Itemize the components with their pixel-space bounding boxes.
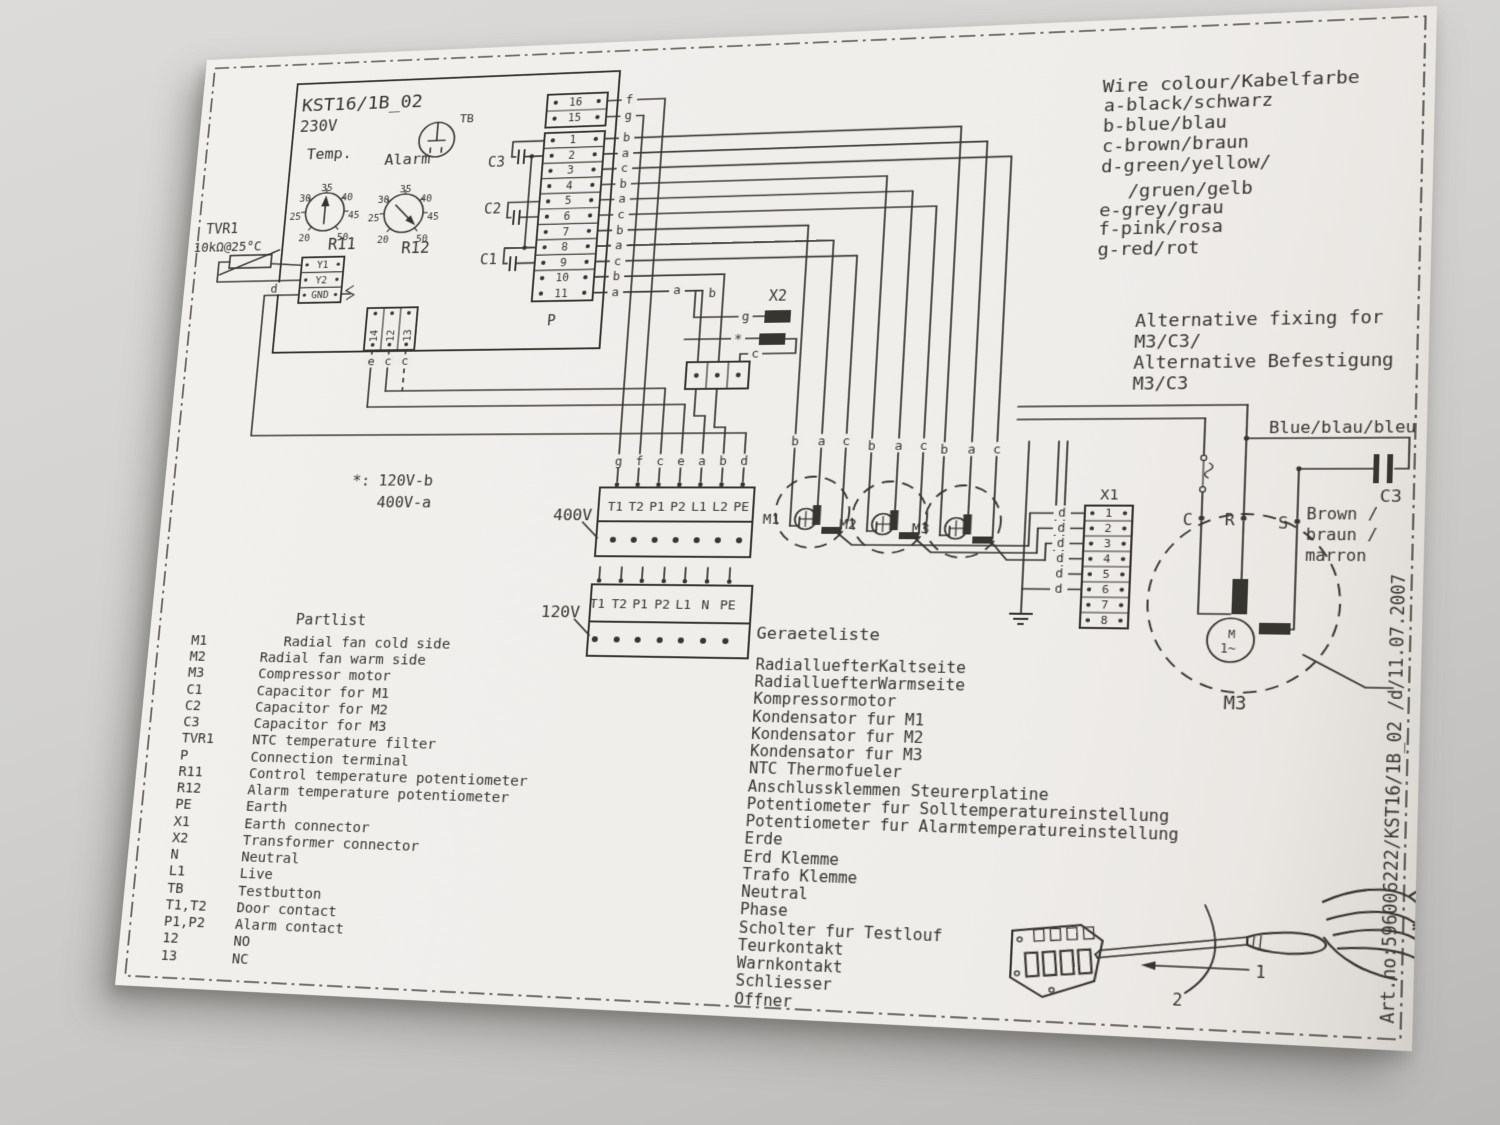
motor-wire-colour: a	[817, 434, 826, 449]
dial-tick-label: 25	[289, 212, 301, 223]
partlist-desc: NC	[231, 949, 249, 967]
x1-pin-number: 3	[1103, 538, 1111, 551]
partlist-key: TB	[167, 879, 185, 896]
junction-dot	[615, 482, 620, 486]
note-400v: 400V-a	[376, 494, 432, 511]
motor-wire-colour: c	[993, 442, 1002, 457]
t120-stub	[642, 567, 643, 580]
motor-wire-colour: c	[919, 438, 928, 453]
junction-dot	[656, 637, 662, 643]
junction-dot	[1119, 588, 1124, 592]
junction-dot	[590, 183, 595, 187]
motor-wire-colour: c	[842, 434, 851, 449]
p-cell-divider	[538, 223, 598, 225]
p-cell-divider	[544, 146, 604, 148]
x1-label: X1	[1100, 487, 1119, 503]
partlist-title: Partlist	[295, 611, 367, 629]
note-star: *:	[351, 473, 371, 490]
junction-dot	[597, 578, 602, 583]
t120-col-label: PE	[719, 598, 736, 613]
dial-tick-label: 30	[299, 194, 311, 205]
junction-dot	[698, 482, 703, 486]
x1-row-divider	[1080, 612, 1128, 613]
x2-a-wire-label: a	[673, 283, 681, 297]
junction-dot	[1086, 603, 1091, 607]
r11-dial-arrow	[320, 195, 331, 223]
p-cell-divider	[539, 208, 599, 210]
r12-dial-arrow	[394, 205, 417, 226]
junction-dot	[682, 579, 687, 584]
junction-dot	[651, 537, 657, 543]
junction-dot	[542, 245, 547, 249]
partlist-key: 13	[160, 946, 178, 964]
step-1-arrow	[1141, 961, 1249, 974]
junction-dot	[589, 198, 594, 202]
p-connector-label: P	[546, 313, 556, 329]
motor-wire-colour: a	[894, 438, 903, 453]
motor-contact-bar	[972, 536, 993, 543]
junction-dot	[547, 184, 552, 188]
c2-label: C2	[483, 202, 501, 218]
junction-dot	[548, 169, 553, 173]
aux-wire-colour: c	[401, 354, 409, 368]
junction-dot	[1085, 618, 1090, 622]
t400-wire-colour: f	[635, 454, 643, 468]
p-cell-divider	[535, 254, 596, 255]
junction-dot	[541, 261, 546, 265]
junction-dot	[371, 343, 375, 347]
y-block-row-label: GND	[311, 291, 329, 302]
junction-dot	[551, 138, 555, 142]
y-block-row-label: Y1	[316, 261, 329, 272]
partlist-key: N	[170, 845, 180, 862]
junction-dot	[404, 343, 408, 347]
p-pin-2-wire-colour: a	[621, 146, 629, 160]
alt-m3-label: M3	[1223, 693, 1247, 714]
aux-pin-label: 14	[368, 330, 381, 343]
t400-wire-colour: b	[719, 454, 728, 469]
dial-tick-label: 35	[321, 184, 333, 195]
geraeteliste-item: Phase	[739, 902, 788, 922]
x2-transformer-connector	[675, 290, 800, 482]
partlist-key: T1,T2	[165, 896, 208, 915]
t120-col-label: L1	[675, 597, 692, 612]
junction-dot	[1121, 557, 1126, 561]
x2-b-wire-label: b	[708, 286, 716, 300]
legend-entry: g-red/rot	[1097, 237, 1200, 260]
partlist-key: C2	[184, 697, 202, 714]
t400-col-label: P1	[649, 500, 666, 515]
x1-d-wire-label: d	[1056, 552, 1064, 566]
junction-dot	[656, 482, 661, 486]
alt-fixing-line1: Alternative fixing for	[1135, 308, 1384, 332]
dial-tick-label: 30	[377, 195, 390, 206]
junction-dot	[722, 638, 728, 644]
partlist-key: PE	[175, 796, 193, 813]
junction-dot	[618, 578, 623, 583]
c1-label: C1	[479, 252, 497, 268]
alt-m3-leader-line	[1302, 655, 1393, 688]
dial-tick	[414, 228, 417, 232]
motor-contact-bar	[889, 510, 898, 530]
partlist-desc: NO	[233, 932, 251, 950]
partlist-key: L1	[168, 862, 186, 879]
p-pin-number: 15	[567, 113, 581, 125]
junction-dot	[595, 115, 600, 119]
t400-wire-colour: c	[656, 454, 664, 468]
junction-dot	[546, 199, 551, 203]
motor-label-M2: M2	[839, 516, 857, 532]
t400-col-label: T1	[607, 500, 624, 514]
terminal-120v-label: 120V	[540, 603, 581, 621]
junction-dot	[1089, 526, 1094, 530]
tvr1-label: TVR1	[205, 222, 239, 238]
alt-terminal-s: S	[1278, 516, 1289, 534]
junction-dot	[539, 291, 544, 295]
junction-dot	[1090, 511, 1095, 515]
x1-d-wire-label: d	[1058, 507, 1066, 521]
partlist-key: C3	[183, 713, 201, 730]
junction-dot	[631, 537, 637, 543]
alarm-label: Alarm	[384, 151, 431, 169]
t400-col-label: PE	[733, 500, 750, 515]
junction-dot	[591, 167, 596, 171]
junction-dot	[304, 278, 308, 281]
t120-col-label: T2	[611, 597, 628, 612]
p-pin-number: 16	[569, 97, 583, 109]
step-1-label: 1	[1255, 964, 1266, 983]
junction-dot	[407, 311, 411, 315]
junction-dot	[700, 638, 706, 644]
junction-dot	[305, 263, 309, 266]
junction-dot	[390, 311, 394, 315]
p-pin-1-wire	[575, 126, 961, 535]
p-pin-number: 11	[554, 288, 568, 300]
partlist-key: C1	[186, 680, 204, 697]
junction-dot	[678, 637, 684, 643]
aux-wire-colour: e	[367, 355, 375, 369]
alt-fixing-line2: M3/C3/	[1134, 332, 1201, 352]
partlist-key: X1	[173, 812, 191, 829]
brown-wire-label-3: marron	[1305, 548, 1367, 566]
p-pin-15-wire-colour: g	[624, 109, 632, 123]
terminal-400v	[580, 487, 754, 557]
c3-label: C3	[487, 155, 505, 171]
motor-label-M3: M3	[911, 521, 930, 537]
p-pin-9-wire-colour: c	[613, 254, 621, 268]
motor-wire-colour: b	[867, 439, 876, 454]
x1-pin-number: 5	[1102, 569, 1110, 582]
junction-dot	[1088, 557, 1093, 561]
dial-tick	[335, 226, 338, 230]
d-wire-label: d	[270, 282, 278, 296]
motor-contact-bar	[812, 505, 821, 525]
p-pin-16-wire-colour: f	[625, 93, 633, 107]
junction-dot	[1123, 511, 1128, 515]
dial-tick	[387, 228, 390, 232]
x1-pin-number: 8	[1100, 615, 1108, 628]
t120-stub	[707, 568, 708, 581]
earth-ground-symbol	[1009, 614, 1033, 624]
p-pin-8-wire-colour: a	[615, 238, 623, 252]
p-pin-number: 5	[564, 196, 572, 208]
board-voltage: 230V	[299, 117, 338, 136]
junction-dot	[334, 293, 338, 296]
junction-dot	[592, 152, 597, 156]
terminal-120v	[572, 584, 753, 658]
partlist-desc: Live	[239, 865, 274, 883]
junction-dot	[1120, 572, 1125, 576]
board-title: KST16/1B_02	[301, 91, 424, 116]
junction-dot	[635, 482, 640, 486]
junction-dot	[543, 230, 548, 234]
t120-stub	[664, 567, 665, 580]
junction-dot	[1087, 587, 1092, 591]
dial-tick-label: 50	[336, 233, 349, 244]
junction-dot	[1089, 542, 1094, 546]
junction-dot	[373, 312, 377, 316]
junction-dot	[1119, 603, 1124, 607]
partlist-key: M1	[191, 632, 209, 649]
motor-label-M1: M1	[762, 511, 780, 527]
p-pin-number: 3	[567, 165, 575, 177]
t120-col-label: P1	[632, 597, 649, 612]
junction-dot	[303, 293, 307, 296]
brown-wire-label-1: Brown /	[1306, 506, 1378, 524]
junction-dot	[677, 482, 682, 486]
x1-pin-number: 1	[1105, 508, 1113, 521]
x1-pin-number: 2	[1104, 523, 1112, 536]
p-pin-number: 9	[560, 257, 568, 269]
p-cell-divider	[534, 269, 595, 270]
geraeteliste-title: Geraeteliste	[756, 625, 880, 645]
capacitor-c2-symbol	[506, 202, 539, 225]
dial-tick-label: 20	[298, 234, 310, 245]
x1-pin-number: 6	[1101, 584, 1109, 597]
t400-col-label: T2	[628, 500, 645, 514]
alt-motor-m: M	[1228, 630, 1236, 642]
motor-wire-colour: b	[940, 442, 949, 457]
p-pin-number: 2	[568, 150, 576, 162]
brown-wire-label-2: braun /	[1306, 527, 1378, 545]
dial-tick-label: 20	[376, 235, 389, 246]
note-120v: 120V-b	[378, 473, 434, 490]
t120-col-label: T1	[589, 597, 606, 612]
t400-col-label: L2	[712, 500, 729, 515]
p-pin-3-wire-colour: c	[620, 161, 628, 175]
screwdriver-fixing-illustration	[1009, 865, 1437, 1016]
y-block-row-label: Y2	[315, 276, 328, 287]
junction-dot	[549, 154, 554, 158]
capacitor-c1-symbol	[503, 248, 536, 272]
x1-pin-number: 4	[1103, 554, 1111, 567]
junction-dot	[1118, 619, 1123, 623]
p-cell-divider	[541, 177, 601, 179]
alt-fixing-line4: M3/C3	[1132, 374, 1188, 394]
p-pin-10-wire-colour: b	[612, 269, 620, 283]
junction-dot	[545, 215, 550, 219]
tvr1-thermistor-symbol	[217, 249, 303, 282]
dial-tick-label: 45	[427, 212, 440, 223]
partlist-key: M2	[189, 648, 207, 665]
junction-dot	[592, 636, 598, 642]
junction-dot	[1121, 542, 1126, 546]
dial-tick-label: 35	[399, 185, 412, 196]
legend-entry: f-pink/rosa	[1098, 216, 1223, 239]
partlist-key: R12	[176, 779, 202, 796]
junction-dot	[582, 291, 587, 295]
t120-stub	[621, 567, 622, 580]
junction-dot	[584, 260, 589, 264]
p-pin-number: 1	[569, 135, 577, 147]
junction-dot	[336, 263, 340, 266]
geraeteliste-item: Offner	[734, 991, 793, 1012]
junction-dot	[693, 537, 699, 543]
screwdriver	[1095, 925, 1326, 968]
junction-dot	[1087, 572, 1092, 576]
motor-wire-colour: b	[791, 434, 800, 449]
junction-dot	[736, 537, 742, 543]
alt-c3-label: C3	[1380, 488, 1402, 507]
x1-d-wire-label: d	[1057, 537, 1065, 551]
junction-dot	[610, 537, 616, 543]
dial-tick-label: 40	[341, 193, 354, 204]
p-pin-6-wire-colour: c	[617, 208, 625, 222]
dial-tick-label: 45	[347, 211, 360, 222]
geraeteliste-item: Erde	[744, 831, 783, 850]
junction-dot	[634, 637, 640, 643]
x2-star-wire-label: *	[733, 331, 742, 347]
p-pin-11-wire-colour: a	[611, 285, 619, 299]
motor-outline-M1	[773, 477, 851, 548]
x2-label: X2	[768, 288, 787, 305]
blue-wire-label: Blue/blau/bleu	[1269, 418, 1417, 438]
junction-dot	[727, 579, 732, 584]
t120-col-label: P2	[654, 597, 671, 612]
alt-fixing-line3: Alternative Befestigung	[1133, 350, 1394, 373]
junction-dot	[594, 137, 599, 141]
t400-wire-colour: a	[698, 454, 707, 468]
p-cell-divider	[537, 238, 597, 239]
x1-d-wire-label: d	[1054, 583, 1062, 597]
partlist-key: 12	[162, 929, 180, 947]
t120-col-label: N	[701, 598, 710, 613]
p-pin-5-wire-colour: a	[618, 192, 626, 206]
dial-tick	[308, 227, 311, 231]
t400-wire-colour: e	[677, 454, 686, 468]
motor-contact-bar	[963, 514, 972, 534]
junction-dot	[585, 244, 590, 248]
junction-dot	[672, 537, 678, 543]
junction-dot	[639, 579, 644, 584]
junction-dot	[1122, 526, 1127, 530]
schematic-drawing: KST16/1B_02 230V TB Temp. Alarm R11 R12 …	[115, 6, 1437, 1051]
junction-dot	[552, 117, 556, 121]
capacitor-c3-symbol	[511, 141, 544, 165]
t400-wire-colour: g	[614, 454, 622, 468]
earth-d-wire	[247, 286, 756, 482]
temp-label: Temp.	[306, 145, 353, 163]
p-cell-divider	[540, 192, 600, 194]
junction-dot	[554, 101, 558, 105]
p-pin-7-wire-colour: b	[616, 223, 624, 237]
alt-terminal-r: R	[1224, 512, 1235, 530]
terminal-400v-label: 400V	[552, 507, 593, 525]
aux-pin-label: 13	[402, 329, 415, 342]
junction-dot	[740, 482, 745, 486]
partlist-desc: Earth	[245, 798, 288, 816]
motor-wire-colour: a	[967, 442, 976, 457]
p-pin-number: 8	[561, 242, 569, 254]
t120-stub	[685, 568, 686, 581]
junction-dot	[596, 99, 601, 103]
p-pin-number: 4	[566, 181, 574, 193]
x1-d-wire-label: d	[1055, 567, 1063, 581]
p-pin-4-wire-colour: b	[619, 177, 627, 191]
motor-outline-M3	[923, 485, 1003, 557]
partlist-key: R11	[178, 763, 204, 780]
t400-col-label: P2	[670, 500, 687, 515]
junction-dot	[540, 276, 545, 280]
dial-tick-label: 40	[420, 194, 433, 205]
p-pin-number: 10	[555, 273, 569, 285]
junction-dot	[588, 213, 593, 217]
p-pin-number: 7	[562, 227, 570, 239]
t400-col-label: L1	[691, 500, 708, 515]
dial-tick-label: 50	[415, 234, 428, 245]
partlist-desc: Alarm contact	[234, 915, 344, 937]
junction-dot	[583, 275, 588, 279]
junction-dot	[335, 278, 339, 281]
junction-dot	[587, 229, 592, 233]
p-pin-11-wire	[588, 290, 703, 363]
alt-terminal-c: C	[1182, 512, 1193, 530]
aux-wire-colour: c	[384, 354, 392, 368]
legend-entry: d-green/yellow/	[1101, 152, 1272, 177]
partlist-key: TVR1	[181, 730, 215, 747]
motor-outline-M2	[850, 481, 929, 553]
x1-d-wire-label: d	[1057, 522, 1065, 536]
partlist-key: P	[179, 746, 189, 763]
aux-pin-label: 12	[385, 330, 398, 342]
junction-dot	[613, 636, 619, 642]
x2-g-wire-label: g	[741, 309, 749, 323]
tvr1-value: 10kΩ@25°C	[193, 239, 262, 255]
junction-dot	[719, 482, 724, 486]
junction-dot	[387, 343, 391, 347]
dial-tick-label: 25	[367, 214, 380, 225]
junction-dot	[715, 537, 721, 543]
x2-c-wire-label: c	[751, 346, 759, 360]
partlist-key: X2	[171, 829, 189, 846]
p-pin-number: 6	[563, 211, 571, 223]
t120-stub	[729, 568, 730, 581]
tb-label: TB	[459, 112, 475, 126]
partlist-key: M3	[187, 664, 205, 681]
t120-stub	[599, 567, 600, 580]
wiring-diagram-sheet: KST16/1B_02 230V TB Temp. Alarm R11 R12 …	[115, 6, 1437, 1051]
t400-wire-colour: d	[740, 454, 749, 469]
p-pin-1-wire-colour: b	[622, 131, 630, 145]
art-number: Art.no:596006222/KST16/1B_02 /d/11.07.20…	[1378, 574, 1411, 1024]
partlist-key: P1,P2	[163, 912, 206, 931]
cable-clamp-squiggle	[341, 285, 355, 299]
alt-motor-wave: 1~	[1220, 643, 1236, 656]
step-2-label: 2	[1172, 992, 1183, 1011]
contact-run-lower	[361, 404, 685, 481]
junction-dot	[705, 579, 710, 584]
junction-dot	[661, 579, 666, 584]
